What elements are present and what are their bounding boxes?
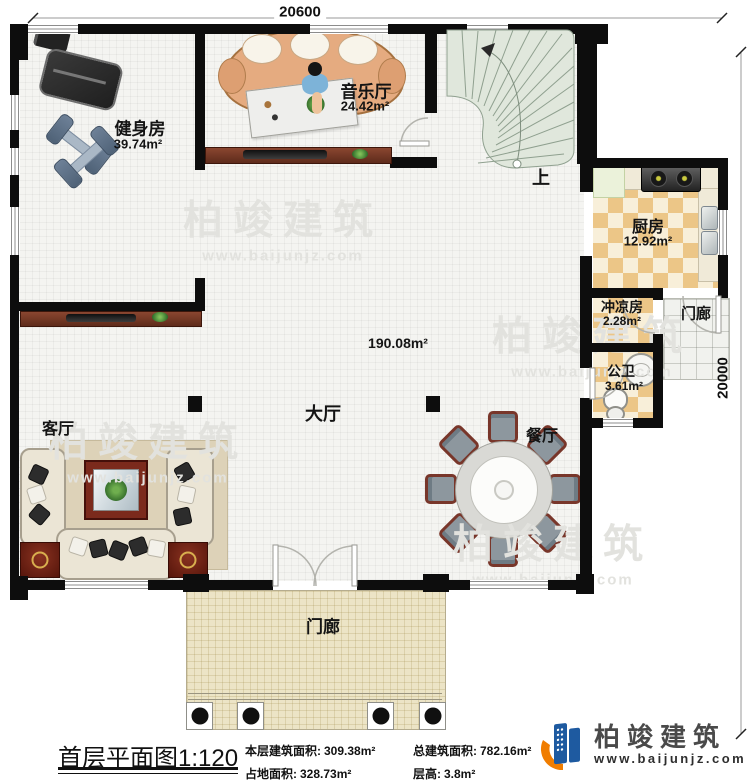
dining-chair [549,474,581,504]
wall [653,288,663,300]
stove [641,164,701,192]
porch-column [367,702,394,730]
title-underline [58,767,238,770]
window [10,148,20,175]
wall [148,580,273,590]
sofa-cushion [242,34,282,64]
pillow [176,484,196,504]
sofa-cushion [290,30,330,60]
pillow [147,539,167,559]
tv [243,150,327,159]
end-table [20,542,60,578]
room-area-kitchen: 12.92m² [624,234,672,249]
brand-name: 柏竣建筑 [594,724,746,751]
brand-logo-icon [538,718,588,772]
front-porch-floor [186,590,446,730]
stat-floor-area: 本层建筑面积:309.38m² [245,742,413,759]
sofa-cushion [338,35,378,65]
porch-column [186,702,213,730]
dimension-width: 20600 [274,4,326,21]
room-label-front-porch: 门廊 [306,613,340,638]
end-table [168,542,208,578]
tv [66,314,136,322]
plant-icon [105,479,127,501]
wall [390,157,437,168]
wall [18,302,205,311]
plant-icon [152,312,168,322]
brand-logo: 柏竣建筑 www.baijunjz.com [538,718,746,772]
window [28,24,78,34]
room-label-bathroom: 公卫 [607,361,635,381]
wall [425,24,437,113]
column [426,396,440,412]
dumbbells [44,112,122,192]
window [310,24,388,34]
stairs-up-label: 上 [532,164,550,190]
wall [718,255,728,298]
kitchen-counter-board [593,166,625,198]
porch-column [237,702,264,730]
room-label-dining-room: 餐厅 [526,422,558,446]
wall [653,352,663,428]
room-label-living-room: 客厅 [42,415,74,439]
person-head [308,62,322,76]
wall [195,24,205,170]
wall [580,164,593,192]
wall [583,158,728,168]
room-area-bathroom: 3.61m² [605,379,643,393]
wall [78,24,310,34]
floor-plan: 柏竣建筑 www.baijunjz.com 柏竣建筑 www.baijunjz.… [0,0,750,784]
wall [718,168,728,210]
window [718,210,728,255]
window [10,207,20,255]
window [467,24,508,34]
stat-footprint-area: 占地面积:328.73m² [245,765,413,782]
plan-stats: 本层建筑面积:309.38m² 总建筑面积:782.16m² 占地面积:328.… [245,742,575,782]
wall [577,24,597,164]
wall [583,343,663,352]
wall [357,580,470,590]
room-label-main-hall: 大厅 [305,400,341,426]
dining-chair [488,535,518,567]
wall [10,24,19,95]
wall-pilaster [183,574,209,592]
kitchen-sink [701,206,718,230]
title-underline [58,773,238,774]
window [10,95,20,130]
window [470,580,548,590]
room-area-gym: 39.74m² [114,137,162,152]
porch-column [419,702,446,730]
brand-website: www.baijunjz.com [594,751,746,766]
window [603,418,633,428]
wall [10,175,19,207]
dining-table [455,441,553,539]
hall-area-label: 190.08m² [368,335,428,351]
plant-icon [352,149,368,159]
column [188,396,202,412]
wall [10,580,65,590]
wall-pilaster [423,574,449,592]
coffee-table [84,460,148,520]
kitchen-sink [701,231,718,255]
person-legs [312,92,322,114]
room-label-side-porch: 门廊 [681,303,711,324]
wall [195,278,205,304]
sofa-armrest [218,58,246,94]
pillow [172,506,192,526]
window [65,580,148,590]
dining-chair [488,411,518,443]
room-area-shower: 2.28m² [603,314,641,328]
dining-chair [425,474,457,504]
room-area-music-hall: 24.42m² [341,99,389,114]
dimension-height: 20000 [715,352,732,404]
wall [10,130,19,148]
